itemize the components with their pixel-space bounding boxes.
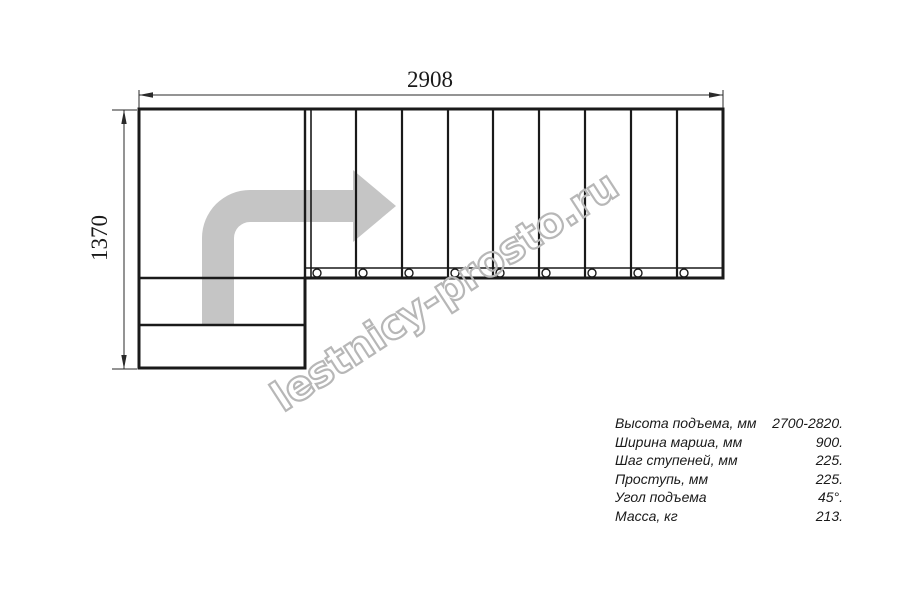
dimension-width <box>139 90 723 108</box>
spec-label: Шаг ступеней, мм <box>615 452 738 468</box>
spec-row-tread: Проступь, мм 225. <box>615 471 843 490</box>
height-value-label: 1370 <box>87 215 112 261</box>
stringer-hole <box>313 269 321 277</box>
spec-label: Высота подъема, мм <box>615 415 757 431</box>
stringer-hole <box>542 269 550 277</box>
spec-row-flight-width: Ширина марша, мм 900. <box>615 434 843 453</box>
spec-table: Высота подъема, мм 2700-2820. Ширина мар… <box>615 415 843 527</box>
spec-value: 225. <box>816 452 843 468</box>
stringer-hole <box>405 269 413 277</box>
arrowhead-right <box>709 92 723 97</box>
width-value-label: 2908 <box>407 67 453 92</box>
arrowhead-bottom <box>121 355 126 369</box>
spec-label: Ширина марша, мм <box>615 434 742 450</box>
arrowhead-left <box>139 92 153 97</box>
direction-arrow <box>202 170 396 325</box>
page: 2908 1370 lestnicy-prosto.ru Высота подъ… <box>0 0 900 600</box>
stringer-hole <box>359 269 367 277</box>
spec-row-mass: Масса, кг 213. <box>615 508 843 527</box>
spec-value: 2700-2820. <box>772 415 843 431</box>
stringer-hole <box>588 269 596 277</box>
dimension-height <box>112 110 137 369</box>
spec-label: Масса, кг <box>615 508 678 524</box>
spec-value: 900. <box>816 434 843 450</box>
stringer-hole <box>634 269 642 277</box>
spec-label: Проступь, мм <box>615 471 708 487</box>
spec-value: 45°. <box>818 489 843 505</box>
stringer-hole <box>680 269 688 277</box>
spec-value: 225. <box>816 471 843 487</box>
spec-row-rise-height: Высота подъема, мм 2700-2820. <box>615 415 843 434</box>
spec-row-rise-angle: Угол подъема 45°. <box>615 489 843 508</box>
spec-value: 213. <box>816 508 843 524</box>
arrowhead-top <box>121 110 126 124</box>
spec-label: Угол подъема <box>615 489 707 505</box>
spec-row-step-pitch: Шаг ступеней, мм 225. <box>615 452 843 471</box>
